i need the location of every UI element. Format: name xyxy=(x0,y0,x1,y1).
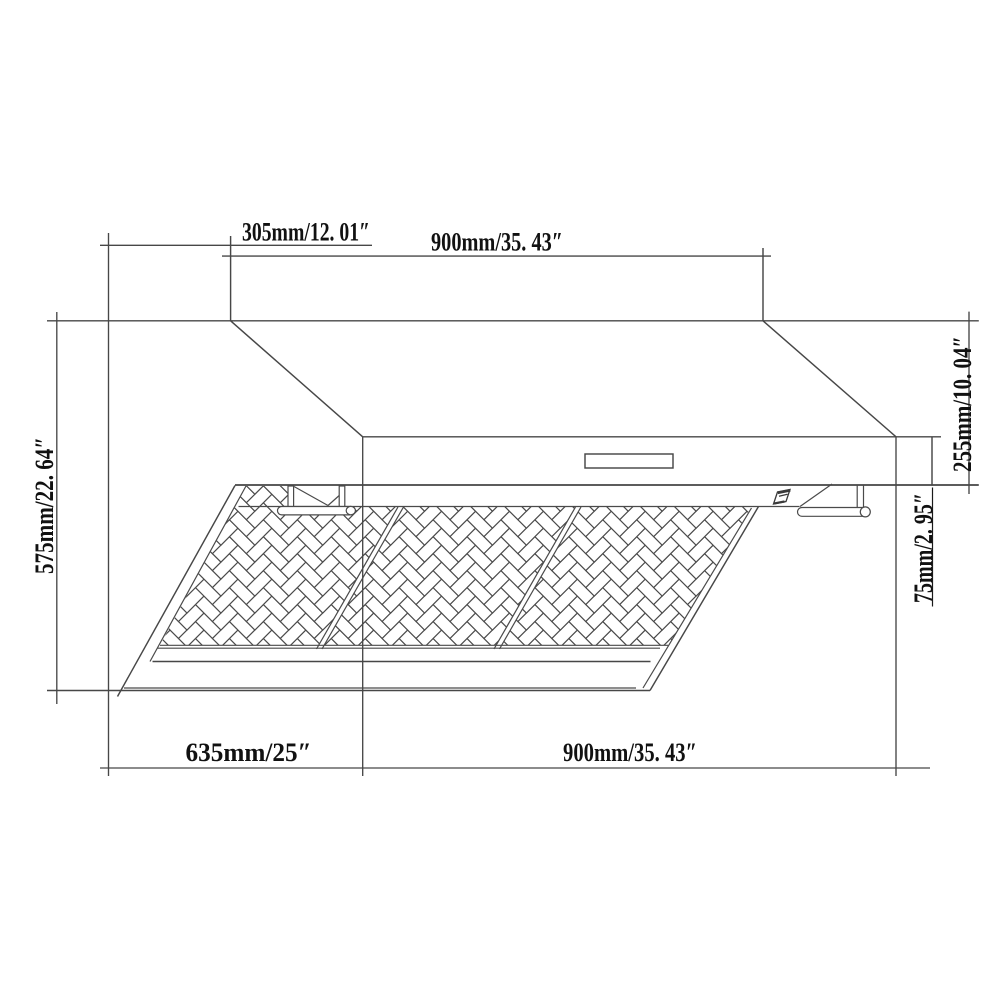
svg-text:900mm/35. 43″: 900mm/35. 43″ xyxy=(563,738,697,767)
svg-text:255mm/10. 04″: 255mm/10. 04″ xyxy=(948,336,977,472)
svg-text:305mm/12. 01″: 305mm/12. 01″ xyxy=(242,218,370,247)
svg-text:635mm/25″: 635mm/25″ xyxy=(186,738,312,767)
svg-text:575mm/22. 64″: 575mm/22. 64″ xyxy=(30,437,59,574)
svg-text:75mm/2. 95″: 75mm/2. 95″ xyxy=(909,493,938,603)
svg-text:900mm/35. 43″: 900mm/35. 43″ xyxy=(431,228,563,257)
